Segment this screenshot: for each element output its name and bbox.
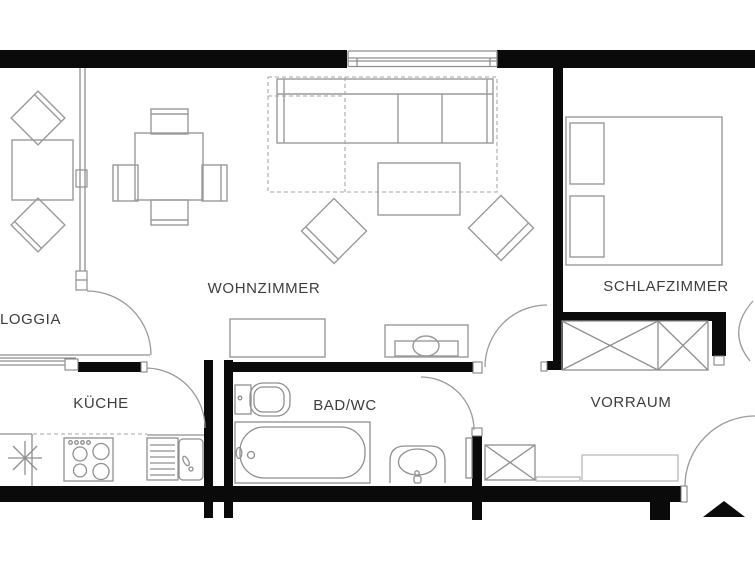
lowboard-with-bowl (385, 325, 468, 357)
sofa (277, 79, 493, 143)
wall-stub-entrance (650, 502, 670, 520)
armchair-right (468, 195, 533, 260)
toilet (235, 383, 290, 416)
dining-chair-top (151, 109, 188, 134)
room-labels: LOGGIA WOHNZIMMER SCHLAFZIMMER KÜCHE BAD… (0, 278, 729, 414)
label-wohnzimmer: WOHNZIMMER (208, 280, 321, 297)
fridge-star-symbol (8, 441, 42, 475)
hall-bench (582, 455, 678, 481)
living-room-window (348, 51, 497, 67)
label-loggia: LOGGIA (0, 311, 61, 328)
coffee-table (378, 163, 460, 215)
bed-pillow-2 (570, 196, 604, 257)
entrance-arrow-marker (703, 501, 745, 517)
wall-bottom (0, 486, 683, 502)
dining-table (135, 133, 203, 200)
bedroom-door-swing (739, 301, 753, 361)
windows (0, 51, 497, 365)
kitchen-window (0, 361, 65, 365)
label-kueche: KÜCHE (73, 394, 129, 412)
frame-kitchen-window (65, 359, 78, 370)
kitchen-door-swing (147, 368, 205, 428)
kitchen-fittings (0, 434, 204, 486)
kitchen-sink (147, 438, 203, 480)
entrance-door-swing (685, 416, 755, 486)
frame-kitchen-door (141, 362, 147, 372)
label-bad-wc: BAD/WC (313, 397, 377, 414)
bed (566, 117, 722, 265)
label-vorraum: VORRAUM (591, 394, 672, 411)
wall-top-right (497, 50, 755, 68)
loggia-door-swing (87, 291, 151, 355)
wall-bedroom-hall (560, 312, 713, 321)
floorplan: LOGGIA WOHNZIMMER SCHLAFZIMMER KÜCHE BAD… (0, 0, 755, 566)
wall-top-left (0, 50, 347, 68)
sink-tap (181, 455, 190, 466)
dining-chair-right (202, 165, 227, 201)
frame-bedroom-door (714, 356, 724, 365)
living-hall-door-swing (485, 305, 547, 367)
wall-foot-living-hall (547, 361, 553, 370)
shoe-cabinet (485, 445, 535, 480)
bathtub-drain (248, 452, 255, 459)
loggia-chair-1 (11, 91, 65, 145)
loggia-chair-2 (11, 198, 65, 252)
label-schlafzimmer: SCHLAFZIMMER (603, 278, 729, 295)
wall-bath-top (233, 362, 473, 372)
frame-bath-door-top (473, 362, 482, 373)
hall-radiator (466, 438, 472, 478)
hall-threshold-shelf (536, 477, 580, 481)
loggia-parapet (0, 355, 150, 358)
frame-entrance-door (681, 486, 687, 502)
loggia-table (12, 140, 73, 200)
hall-furniture (466, 438, 678, 481)
dining-chair-bottom (151, 200, 188, 225)
wall-kitchen-top (78, 362, 141, 372)
living-room-furniture (113, 77, 534, 357)
dining-set (113, 109, 227, 225)
washbasin (390, 446, 445, 483)
hall-wardrobe (562, 321, 708, 370)
bathtub (235, 422, 370, 483)
bath-door-swing (421, 377, 474, 430)
bedroom-furniture (566, 117, 722, 265)
dining-chair-left (113, 165, 138, 201)
sideboard (230, 319, 325, 357)
wall-bath-hall (472, 436, 482, 520)
loggia-furniture (11, 91, 73, 252)
bathtub-tap (236, 448, 242, 459)
floorplan-drawing: LOGGIA WOHNZIMMER SCHLAFZIMMER KÜCHE BAD… (0, 0, 755, 566)
bed-pillow-1 (570, 123, 604, 184)
wall-wardrobe-end (712, 312, 726, 356)
stove (64, 438, 113, 481)
armchair-left (301, 198, 366, 263)
frame-living-hall-door (541, 362, 547, 371)
